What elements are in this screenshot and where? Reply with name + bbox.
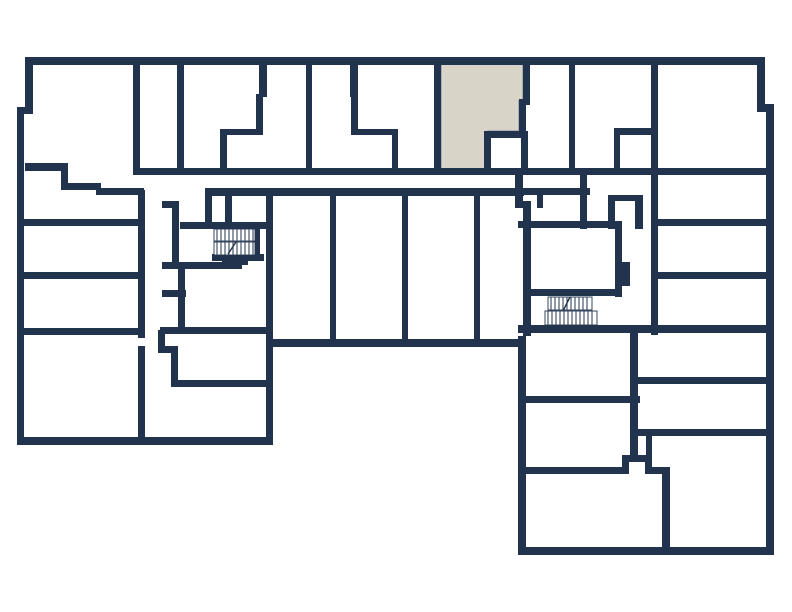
wall-segment [220, 129, 227, 170]
wall-segment [638, 377, 768, 384]
wall-segment [61, 183, 101, 190]
wall-segment [392, 129, 398, 170]
wall-segment [266, 339, 273, 445]
wall-segment [172, 201, 179, 269]
wall-segment [518, 467, 629, 474]
wall-segment [25, 57, 33, 114]
wall-segment [24, 328, 142, 335]
wall-segment [518, 336, 526, 555]
wall-segment [615, 221, 622, 297]
wall-segment [138, 346, 145, 445]
wall-segment [518, 325, 768, 333]
wall-segment [651, 272, 768, 279]
wall-segment [518, 396, 640, 403]
wall-segment [518, 221, 615, 228]
floor-plan [0, 0, 792, 612]
wall-segment [138, 190, 145, 338]
wall-segment [171, 380, 270, 387]
wall-segment [17, 107, 24, 445]
wall-segment [484, 131, 491, 172]
wall-segment [205, 188, 524, 196]
wall-segment [614, 128, 620, 170]
wall-segment [351, 94, 358, 135]
wall-segment [519, 99, 526, 135]
wall-segment [474, 196, 480, 343]
wall-segment [622, 262, 630, 286]
wall-segment [306, 65, 312, 175]
wall-segment [518, 188, 590, 195]
wall-segment [630, 325, 638, 458]
wall-segment [177, 65, 184, 175]
floor-plan-svg [0, 0, 792, 612]
wall-segment [523, 289, 622, 296]
wall-segment [537, 195, 543, 208]
wall-segment [350, 65, 358, 97]
wall-segment [638, 429, 768, 436]
wall-segment [651, 219, 768, 226]
wall-segment [518, 547, 774, 555]
wall-segment [614, 128, 658, 135]
wall-segment [635, 195, 643, 229]
wall-segment [662, 467, 670, 553]
wall-segment [651, 65, 658, 335]
wall-segment [330, 196, 336, 343]
wall-segment [351, 129, 398, 135]
stairs-right-flight [545, 311, 597, 325]
wall-segment [96, 188, 144, 195]
wall-segment [133, 168, 768, 175]
wall-segment [162, 262, 242, 269]
wall-segment [259, 65, 267, 97]
wall-segment [580, 175, 587, 229]
wall-segment [162, 290, 186, 297]
wall-segment [569, 65, 575, 175]
wall-segment [24, 272, 142, 279]
wall-segment [24, 219, 142, 226]
wall-segment [256, 94, 263, 135]
wall-segment [434, 65, 441, 172]
wall-segment [266, 188, 273, 347]
wall-segment [160, 327, 273, 334]
wall-segment [25, 57, 765, 65]
wall-segment [402, 196, 408, 343]
wall-segment [757, 57, 765, 112]
wall-segment [646, 433, 652, 457]
plan-background [0, 0, 792, 612]
wall-segment [133, 65, 140, 175]
wall-segment [266, 339, 524, 347]
